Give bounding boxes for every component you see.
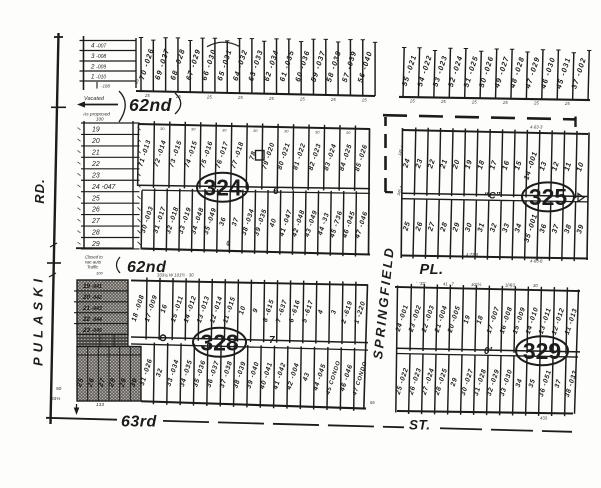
- svg-text:27: 27: [91, 218, 101, 225]
- svg-text:23 -045: 23 -045: [82, 327, 102, 334]
- svg-text:30: 30: [346, 130, 351, 135]
- svg-text:100: 100: [96, 117, 104, 122]
- svg-text:333¼ W 101½ · 30: 333¼ W 101½ · 30: [157, 273, 194, 278]
- svg-text:26: 26: [91, 207, 100, 214]
- svg-text:24 -047: 24 -047: [91, 184, 117, 191]
- svg-text:33⅓: 33⅓: [51, 396, 60, 402]
- svg-text:30: 30: [191, 127, 196, 132]
- svg-text:28: 28: [91, 230, 100, 237]
- svg-text:4·63·8: 4·63·8: [530, 259, 543, 264]
- svg-text:19 -041: 19 -041: [83, 283, 102, 290]
- svg-text:4·73·8: 4·73·8: [466, 252, 479, 257]
- svg-text:23: 23: [91, 172, 100, 179]
- svg-text:63rd: 63rd: [121, 414, 158, 431]
- svg-text:30: 30: [284, 129, 289, 134]
- svg-text:433: 433: [540, 416, 548, 421]
- svg-text:325: 325: [529, 184, 568, 210]
- svg-text:PULASKI: PULASKI: [31, 274, 46, 366]
- svg-text:RD.: RD.: [32, 178, 47, 203]
- svg-text:25: 25: [91, 195, 100, 202]
- svg-text:19: 19: [92, 127, 100, 134]
- svg-text:25: 25: [502, 100, 508, 105]
- svg-text:30: 30: [160, 126, 165, 131]
- svg-text:25: 25: [237, 95, 243, 100]
- svg-text:25: 25: [533, 101, 539, 106]
- svg-text:ST.: ST.: [409, 418, 431, 433]
- svg-text:62nd: 62nd: [129, 95, 172, 115]
- svg-text:30: 30: [315, 129, 320, 134]
- svg-text:25: 25: [409, 99, 415, 104]
- svg-text:328: 328: [200, 329, 239, 355]
- svg-text:101½: 101½: [471, 282, 482, 287]
- svg-text:20 -042: 20 -042: [82, 294, 102, 301]
- svg-text:25: 25: [175, 94, 181, 99]
- svg-text:29: 29: [91, 241, 100, 248]
- svg-text:22: 22: [91, 161, 100, 168]
- svg-text:Vacated: Vacated: [84, 96, 105, 102]
- svg-text:0′: 0′: [484, 346, 493, 357]
- svg-text:22 -044: 22 -044: [82, 316, 102, 323]
- svg-text:Traffic: Traffic: [87, 265, 99, 270]
- svg-text:7: 7: [269, 335, 275, 346]
- svg-text:50: 50: [56, 386, 62, 392]
- svg-text:329: 329: [523, 338, 561, 364]
- svg-text:41 · 7: 41 · 7: [443, 281, 454, 286]
- svg-text:33: 33: [420, 281, 425, 286]
- svg-text:324: 324: [203, 174, 242, 200]
- svg-text:21: 21: [91, 150, 100, 157]
- svg-text:25: 25: [361, 98, 367, 103]
- svg-text:25: 25: [206, 94, 212, 99]
- svg-text:25: 25: [440, 99, 446, 104]
- svg-text:4·63·3: 4·63·3: [530, 125, 543, 130]
- svg-text:25: 25: [268, 96, 274, 101]
- svg-text:25: 25: [330, 97, 336, 102]
- svg-text:25: 25: [144, 93, 150, 98]
- svg-text:25: 25: [471, 100, 477, 105]
- svg-text:133: 133: [96, 402, 104, 408]
- svg-text:25: 25: [299, 96, 305, 101]
- svg-text:30: 30: [533, 283, 538, 288]
- svg-text:25: 25: [564, 101, 570, 106]
- svg-text:“C”: “C”: [484, 191, 501, 202]
- svg-text:-188: -188: [101, 84, 111, 89]
- svg-text:PL.: PL.: [420, 262, 444, 278]
- svg-text:21 -043: 21 -043: [82, 305, 102, 312]
- svg-text:30: 30: [222, 127, 227, 132]
- svg-text:30: 30: [253, 128, 258, 133]
- svg-text:1 -010: 1 -010: [91, 74, 106, 81]
- svg-text:66: 66: [370, 400, 375, 405]
- svg-text:4 -007: 4 -007: [91, 43, 106, 50]
- svg-text:6: 6: [273, 186, 279, 197]
- svg-text:1(4)3: 1(4)3: [505, 283, 515, 288]
- svg-text:20: 20: [91, 138, 100, 145]
- svg-text:3 -008: 3 -008: [91, 53, 106, 60]
- svg-text:¢: ¢: [226, 239, 231, 248]
- svg-text:100: 100: [96, 271, 103, 276]
- svg-text:2 -009: 2 -009: [90, 64, 106, 71]
